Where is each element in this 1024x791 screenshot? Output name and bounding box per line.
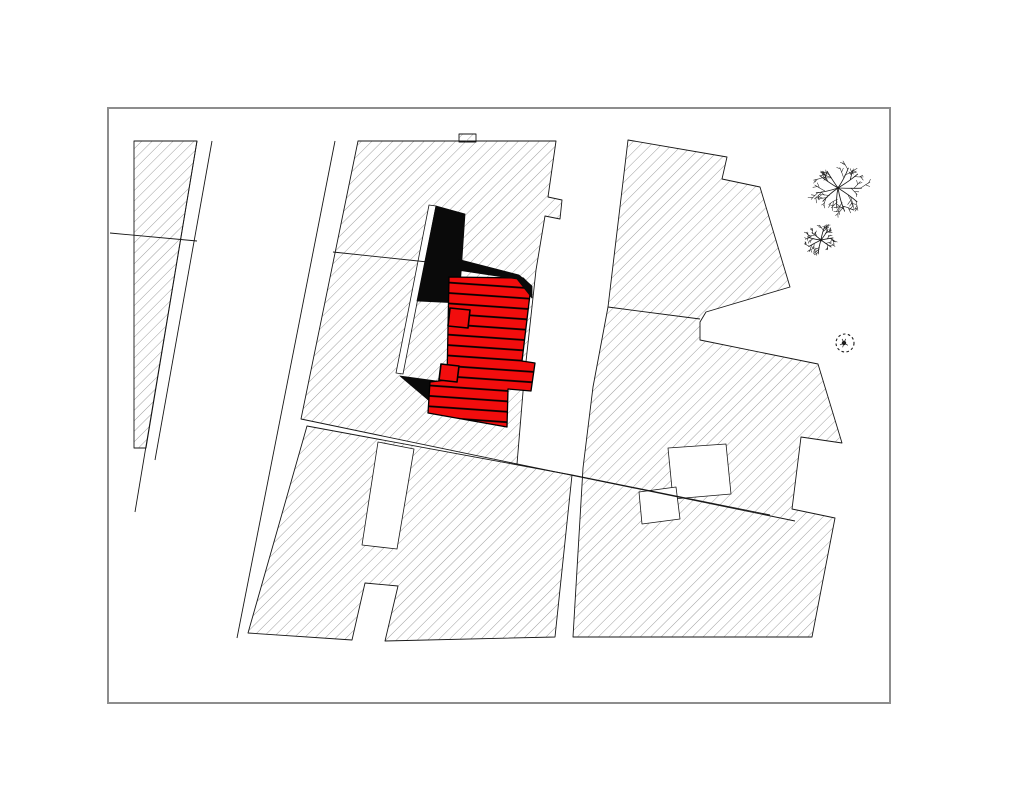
site-plan-canvas [0, 0, 1024, 791]
parcel-block-center-bump [459, 134, 476, 142]
courtyard-east-1 [668, 444, 731, 499]
site-plan-page [0, 0, 1024, 791]
highlighted-building-tab-2 [439, 364, 459, 382]
highlighted-building-tab-1 [448, 308, 470, 328]
